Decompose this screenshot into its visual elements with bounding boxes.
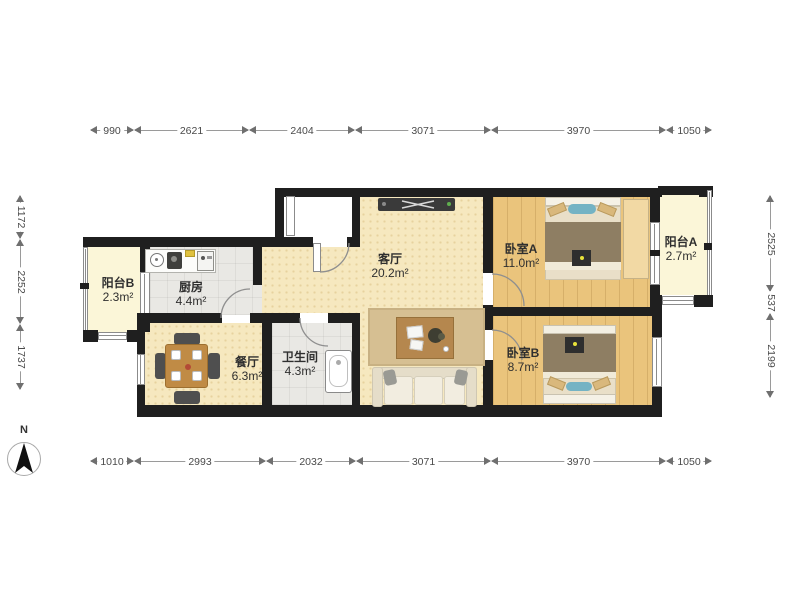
arrow-left-icon xyxy=(90,126,97,134)
dim-bottom-0-label: 1010 xyxy=(97,456,126,468)
living-name: 客厅 xyxy=(358,252,422,266)
dim-left-2: 1737 xyxy=(14,324,28,390)
label-living: 客厅 20.2m² xyxy=(358,252,422,280)
bedroom-a-door-arc xyxy=(492,274,524,306)
arrow-left-icon xyxy=(134,126,141,134)
dim-top-0-label: 990 xyxy=(100,125,124,137)
dim-top-3-label: 3071 xyxy=(408,125,437,137)
arrow-left-icon xyxy=(356,457,363,465)
dim-bottom-1: 2993 xyxy=(134,455,266,469)
dim-right-0-label: 2525 xyxy=(765,229,777,258)
dim-top-2: 2404 xyxy=(249,124,355,138)
label-bathroom: 卫生间 4.3m² xyxy=(268,350,332,378)
dim-bottom-0: 1010 xyxy=(90,455,134,469)
dim-bottom-5-label: 1050 xyxy=(674,456,703,468)
label-kitchen: 厨房 4.4m² xyxy=(163,280,219,308)
arrow-up-icon xyxy=(766,313,774,320)
kitchen-dining-door-arc xyxy=(221,289,250,318)
arrow-left-icon xyxy=(491,457,498,465)
bedroom-b-area: 8.7m² xyxy=(494,360,552,374)
balcony-b-area: 2.3m² xyxy=(92,290,144,304)
dim-right-0: 2525 xyxy=(764,195,778,292)
dim-bottom-4-label: 3970 xyxy=(564,456,593,468)
label-balcony-a: 阳台A 2.7m² xyxy=(655,235,707,263)
kitchen-area: 4.4m² xyxy=(163,294,219,308)
dim-bottom-2: 2032 xyxy=(266,455,356,469)
balcony-a-area: 2.7m² xyxy=(655,249,707,263)
compass: N xyxy=(4,424,44,482)
dim-left-1-label: 2252 xyxy=(15,267,27,296)
tv-bowtie-icon xyxy=(402,201,434,208)
arrow-left-icon xyxy=(90,457,97,465)
arrow-left-icon xyxy=(355,126,362,134)
dim-bottom-3-label: 3071 xyxy=(409,456,438,468)
dim-right-2-label: 2199 xyxy=(765,341,777,370)
arrow-up-icon xyxy=(766,195,774,202)
living-area: 20.2m² xyxy=(358,266,422,280)
dim-bottom-4: 3970 xyxy=(491,455,666,469)
arrow-down-icon xyxy=(766,391,774,398)
entry-door-arc xyxy=(320,243,349,272)
arrow-left-icon xyxy=(134,457,141,465)
dim-left-1: 2252 xyxy=(14,239,28,324)
arrow-right-icon xyxy=(705,457,712,465)
dim-top-0: 990 xyxy=(90,124,134,138)
arrow-right-icon xyxy=(127,126,134,134)
arrow-left-icon xyxy=(491,126,498,134)
compass-needle-icon xyxy=(4,437,44,481)
dim-left-0: 1172 xyxy=(14,195,28,239)
arrow-down-icon xyxy=(16,232,24,239)
dim-right-1: 537 xyxy=(764,292,778,313)
arrow-right-icon xyxy=(484,457,491,465)
arrow-up-icon xyxy=(16,324,24,331)
bedroom-a-name: 卧室A xyxy=(492,242,550,256)
arrow-right-icon xyxy=(659,457,666,465)
dim-top-2-label: 2404 xyxy=(287,125,316,137)
bathroom-door-arc xyxy=(300,318,328,346)
dim-left-2-label: 1737 xyxy=(15,342,27,371)
balcony-a-name: 阳台A xyxy=(655,235,707,249)
dim-bottom-5: 1050 xyxy=(666,455,712,469)
dim-right-1-label: 537 xyxy=(765,291,777,315)
label-balcony-b: 阳台B 2.3m² xyxy=(92,276,144,304)
dim-top-5: 1050 xyxy=(666,124,712,138)
bedroom-a-area: 11.0m² xyxy=(492,256,550,270)
arrow-left-icon xyxy=(666,126,673,134)
bathroom-area: 4.3m² xyxy=(268,364,332,378)
label-bedroom-a: 卧室A 11.0m² xyxy=(492,242,550,270)
arrow-right-icon xyxy=(348,126,355,134)
balcony-b-name: 阳台B xyxy=(92,276,144,290)
arrow-right-icon xyxy=(349,457,356,465)
arrow-up-icon xyxy=(16,239,24,246)
label-bedroom-b: 卧室B 8.7m² xyxy=(494,346,552,374)
arrow-left-icon xyxy=(666,457,673,465)
arrow-left-icon xyxy=(249,126,256,134)
dim-bottom-3: 3071 xyxy=(356,455,491,469)
arrow-right-icon xyxy=(659,126,666,134)
arrow-right-icon xyxy=(705,126,712,134)
floorplan-canvas: 阳台B 2.3m² 厨房 4.4m² 餐厅 6.3m² 卫生间 4.3m² 客厅… xyxy=(0,0,800,600)
dim-top-5-label: 1050 xyxy=(674,125,703,137)
arrow-down-icon xyxy=(16,383,24,390)
bathroom-name: 卫生间 xyxy=(268,350,332,364)
kitchen-name: 厨房 xyxy=(163,280,219,294)
compass-north-label: N xyxy=(4,424,44,436)
dim-left-0-label: 1172 xyxy=(15,203,27,232)
dim-top-1: 2621 xyxy=(134,124,249,138)
dim-top-3: 3071 xyxy=(355,124,491,138)
arrow-left-icon xyxy=(266,457,273,465)
arrow-right-icon xyxy=(127,457,134,465)
dim-top-4: 3970 xyxy=(491,124,666,138)
bedroom-b-name: 卧室B xyxy=(494,346,552,360)
dim-top-4-label: 3970 xyxy=(564,125,593,137)
dim-bottom-2-label: 2032 xyxy=(296,456,325,468)
dim-top-1-label: 2621 xyxy=(177,125,206,137)
arrow-up-icon xyxy=(16,195,24,202)
dim-bottom-1-label: 2993 xyxy=(185,456,214,468)
arrow-right-icon xyxy=(259,457,266,465)
arrow-right-icon xyxy=(484,126,491,134)
arrow-down-icon xyxy=(16,317,24,324)
dim-right-2: 2199 xyxy=(764,313,778,398)
arrow-right-icon xyxy=(242,126,249,134)
